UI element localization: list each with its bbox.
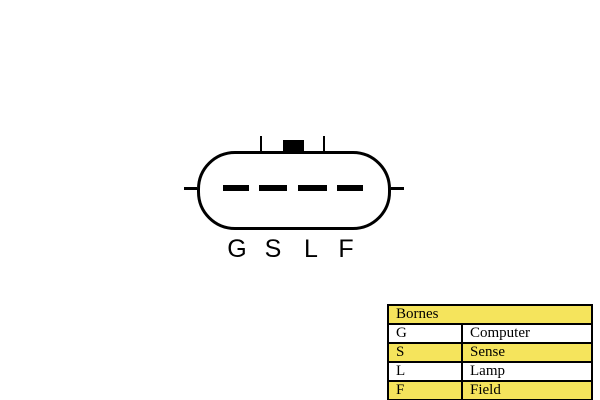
top-notch-left (260, 136, 262, 152)
legend-function-cell: Sense (462, 343, 592, 362)
legend-function-cell: Lamp (462, 362, 592, 381)
pin-label-s: S (265, 235, 282, 264)
legend-function-cell: Field (462, 381, 592, 400)
terminal-slot-l (298, 185, 327, 191)
legend-row-s: S Sense (388, 343, 592, 362)
legend-row-f: F Field (388, 381, 592, 400)
legend-table: Bornes G Computer S Sense L Lamp F Field (387, 304, 593, 400)
terminal-slot-f (337, 185, 363, 191)
side-tick-left (184, 187, 197, 190)
legend-row-l: L Lamp (388, 362, 592, 381)
terminal-slot-g (223, 185, 249, 191)
legend-function-cell: Computer (462, 324, 592, 343)
pin-label-l: L (304, 235, 318, 264)
legend-terminal-cell: G (388, 324, 462, 343)
legend-header-row: Bornes (388, 305, 592, 324)
legend-terminal-cell: S (388, 343, 462, 362)
legend-row-g: G Computer (388, 324, 592, 343)
top-notch-right (323, 136, 325, 152)
side-tick-right (391, 187, 404, 190)
legend-terminal-cell: L (388, 362, 462, 381)
legend-title: Bornes (388, 305, 592, 324)
legend-terminal-cell: F (388, 381, 462, 400)
pin-label-f: F (338, 235, 353, 264)
pin-label-g: G (227, 235, 246, 264)
terminal-slot-s (259, 185, 287, 191)
diagram-canvas: G S L F Bornes G Computer S Sense L Lamp (0, 0, 600, 400)
